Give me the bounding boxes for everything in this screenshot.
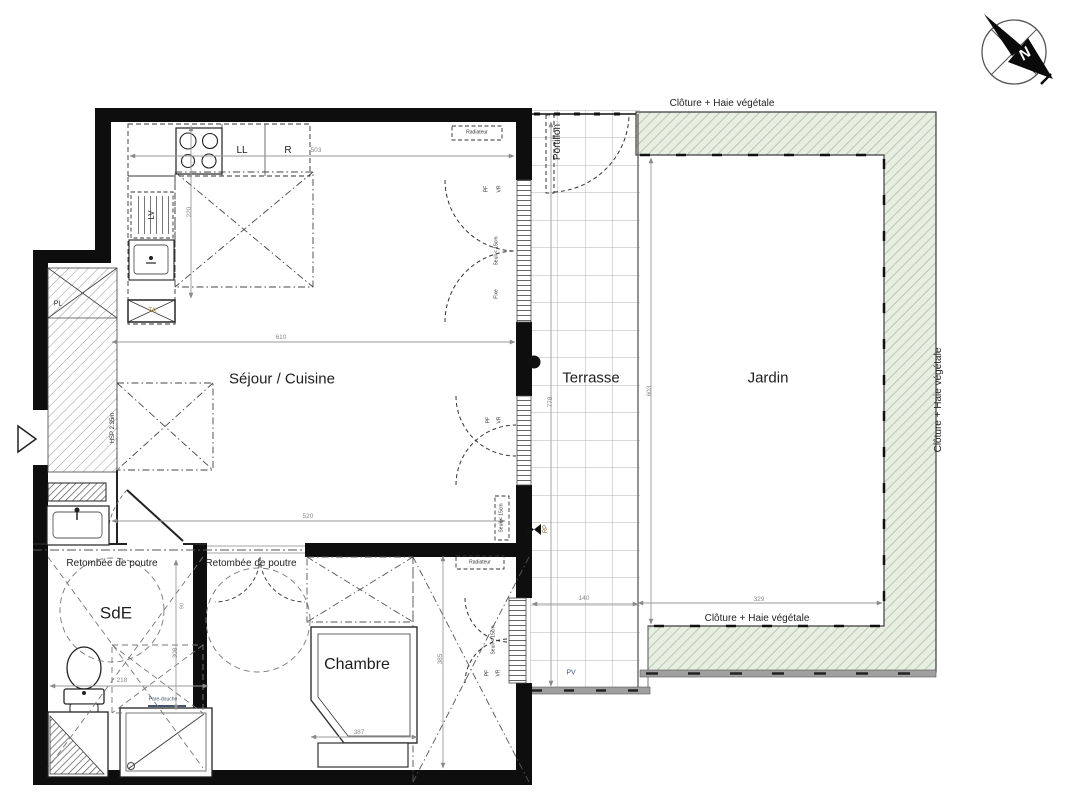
window3-pf-label: PF [486, 670, 491, 676]
shower [120, 706, 212, 777]
radiator-label-living: Radiateur [466, 131, 488, 136]
bed [311, 627, 417, 767]
window1-seuil-label: Seuil < 15cm [495, 236, 500, 265]
dim-garden-depth: 603 [647, 386, 654, 397]
beam-label-left: Retombée de poutre [66, 559, 157, 569]
garden-fence [640, 155, 884, 626]
window2-pf-label: PF [487, 417, 492, 423]
sde-shelf [48, 483, 106, 501]
bedroom-door [207, 543, 305, 602]
closet-label: PL [54, 301, 63, 308]
hob [176, 128, 222, 174]
window3-vr-label: VR [497, 670, 502, 677]
duct-box [48, 712, 108, 777]
dishwasher-label: LV [148, 210, 156, 219]
living-cabinet [117, 383, 213, 470]
dim-sde-door: 90 [180, 603, 186, 609]
room-label-sejour: Séjour / Cuisine [229, 372, 335, 387]
dim-terrace-depth: 778 [548, 397, 555, 408]
dim-terrace-south: 140 [579, 596, 590, 603]
gate-label: Portillon [553, 124, 563, 160]
windows [509, 180, 531, 683]
dim-sde-width: 218 [117, 678, 128, 685]
radiator-label-bedroom: Radiateur [469, 561, 491, 566]
room-label-terrasse: Terrasse [562, 371, 620, 386]
washbasin [47, 506, 109, 545]
fridge-label: R [284, 146, 291, 156]
room-label-jardin: Jardin [748, 371, 789, 386]
dim-garden-width: 329 [754, 597, 765, 604]
toilet [64, 647, 104, 713]
pv-label: PV [566, 670, 575, 677]
floor-plan-drawing [0, 0, 1084, 800]
dim-living-south: 520 [303, 514, 314, 521]
entry-hall [48, 268, 117, 545]
outdoor-tap-label: RP [543, 525, 549, 533]
kitchen-sink [129, 240, 174, 280]
entrance-arrow-icon [18, 426, 36, 452]
window-swings [445, 180, 516, 683]
floor-plan-page: Séjour / Cuisine Terrasse Jardin Chambre… [0, 0, 1084, 800]
room-label-sde: SdE [100, 605, 132, 622]
washing-machine-label: LL [236, 146, 247, 156]
dim-bedroom-depth: 385 [438, 654, 445, 665]
dim-sde-depth: 308 [173, 648, 180, 659]
fence-label-top: Clôture + Haie végétale [670, 99, 775, 109]
electrical-panel-label: TA [148, 308, 155, 314]
room-label-chambre: Chambre [324, 657, 390, 673]
beam-label-right: Retombée de poutre [205, 559, 296, 569]
dim-living-width: 610 [276, 335, 287, 342]
hedge-band [636, 112, 936, 672]
fence-label-bottom: Clôture + Haie végétale [705, 614, 810, 624]
upper-cabinets [175, 172, 313, 287]
window1-vr-label: VR [498, 186, 503, 193]
shower-screen-label: Pare-douche [149, 698, 178, 703]
window2-seuil-label: Seuil < 15cm [500, 503, 505, 532]
window1-fixe-label: Fixe [495, 289, 500, 298]
window2-vr-label: VR [498, 417, 503, 424]
fence-label-right: Clôture + Haie végétale [934, 348, 944, 453]
dim-kitchen-depth: 220 [187, 207, 194, 218]
wall-light-icon [528, 356, 541, 369]
ceiling-height-label: HSP 2.35m [110, 413, 116, 444]
window1-pf-label: PF [485, 186, 490, 192]
window3-seuil-label: Seuil < 15cm [492, 625, 497, 654]
dim-kitchen-width: 503 [311, 148, 322, 155]
dim-bed-width: 387 [354, 730, 365, 737]
